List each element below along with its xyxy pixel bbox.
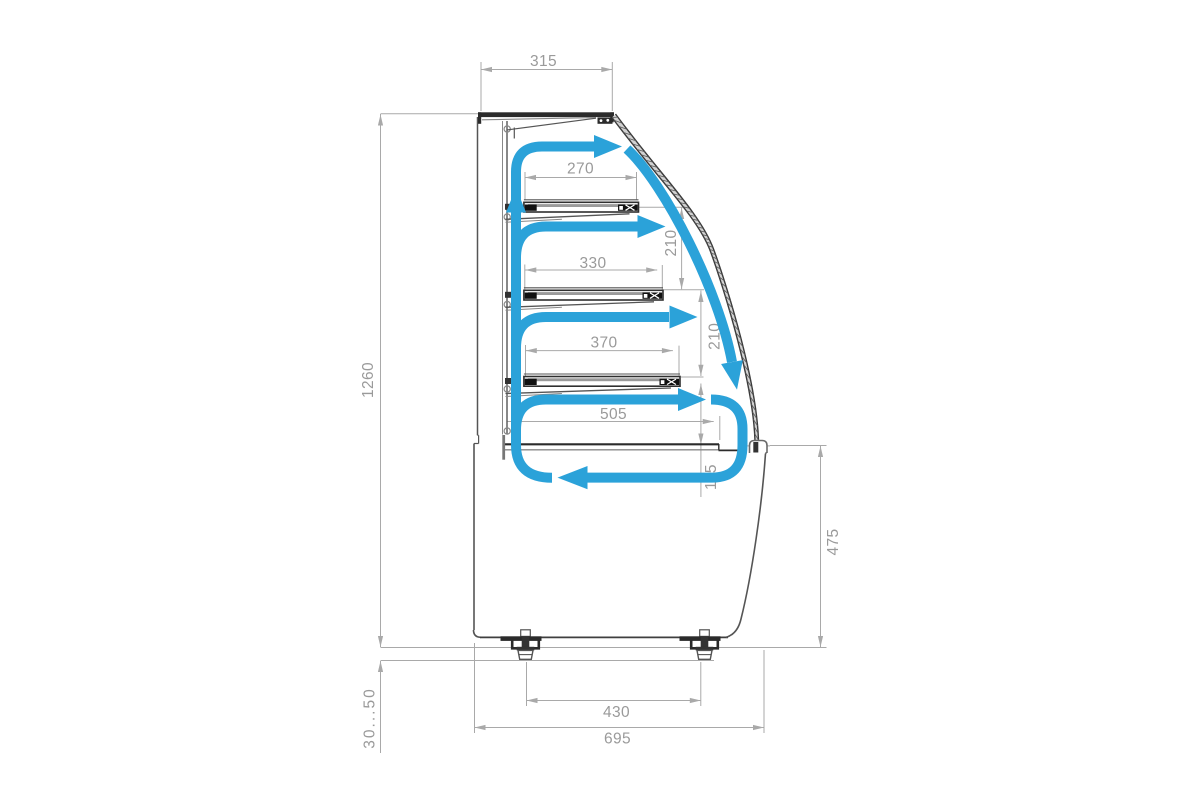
svg-text:315: 315 <box>530 53 557 70</box>
svg-text:695: 695 <box>604 731 631 748</box>
svg-text:505: 505 <box>600 406 627 423</box>
svg-text:210: 210 <box>663 229 680 256</box>
svg-text:30...50: 30...50 <box>362 687 379 748</box>
svg-text:330: 330 <box>579 255 606 272</box>
svg-text:1260: 1260 <box>360 362 377 398</box>
svg-text:430: 430 <box>603 704 630 721</box>
svg-text:475: 475 <box>825 528 842 555</box>
svg-text:370: 370 <box>590 335 617 352</box>
svg-text:270: 270 <box>567 161 594 178</box>
